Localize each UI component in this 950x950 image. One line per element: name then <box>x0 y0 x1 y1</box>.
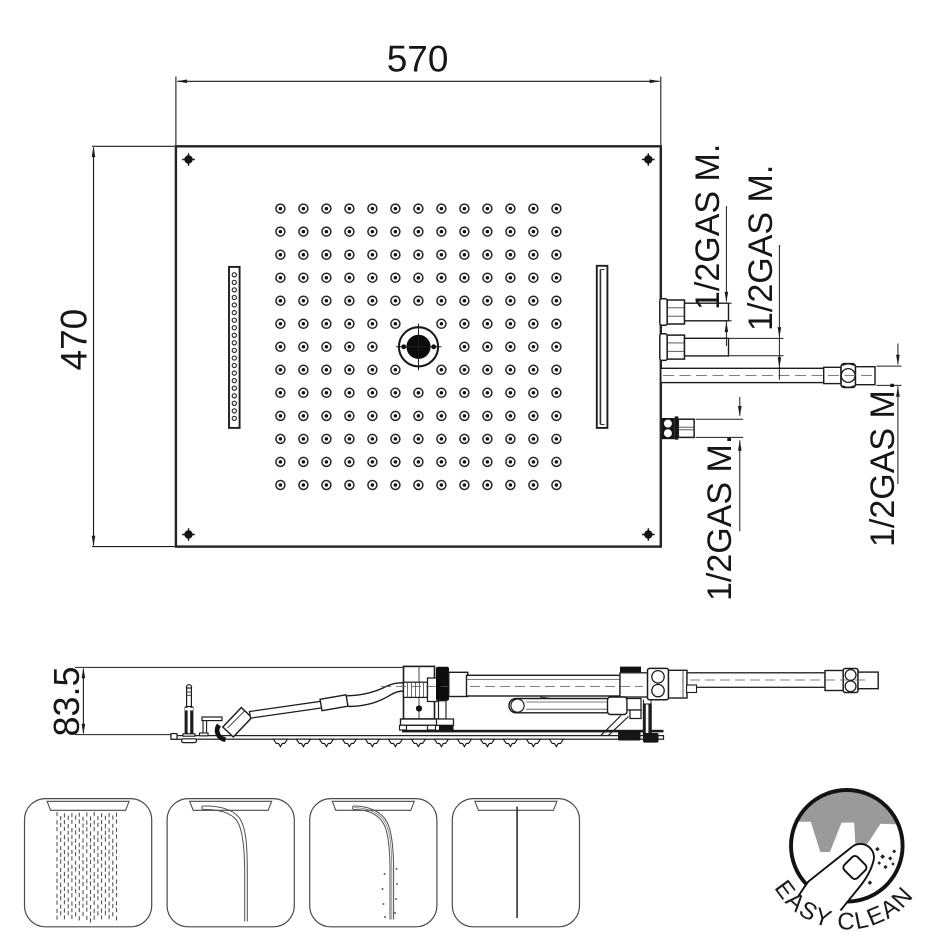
svg-text:570: 570 <box>387 39 449 80</box>
svg-text:1/2GAS M.: 1/2GAS M. <box>689 144 727 310</box>
svg-text:1/2GAS M.: 1/2GAS M. <box>864 381 902 547</box>
svg-text:1/2GAS M.: 1/2GAS M. <box>742 165 780 331</box>
svg-text:470: 470 <box>54 309 95 371</box>
svg-text:1/2GAS M.: 1/2GAS M. <box>701 435 739 601</box>
svg-text:83.5: 83.5 <box>46 666 87 736</box>
